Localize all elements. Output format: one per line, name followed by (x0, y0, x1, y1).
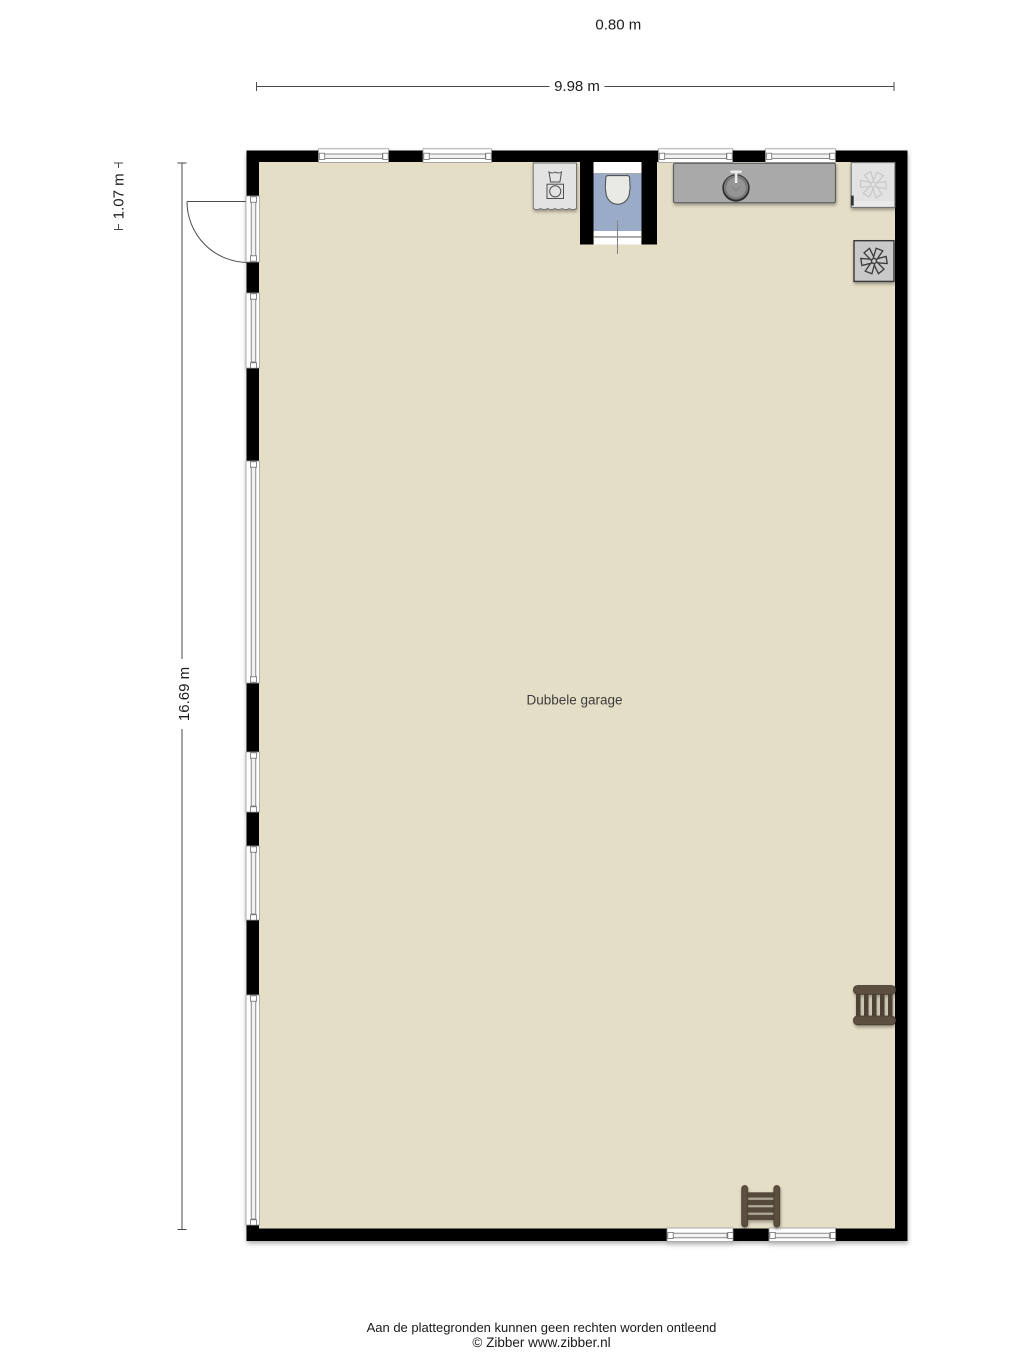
svg-text:© Zibber www.zibber.nl: © Zibber www.zibber.nl (472, 1335, 610, 1350)
svg-text:0.80 m: 0.80 m (595, 17, 641, 34)
svg-text:Dubbele garage: Dubbele garage (526, 693, 622, 708)
svg-text:1.07 m: 1.07 m (111, 173, 128, 219)
svg-text:9.98 m: 9.98 m (554, 78, 600, 95)
svg-text:Aan de plattegronden kunnen ge: Aan de plattegronden kunnen geen rechten… (367, 1320, 717, 1335)
svg-text:16.69 m: 16.69 m (176, 667, 193, 721)
